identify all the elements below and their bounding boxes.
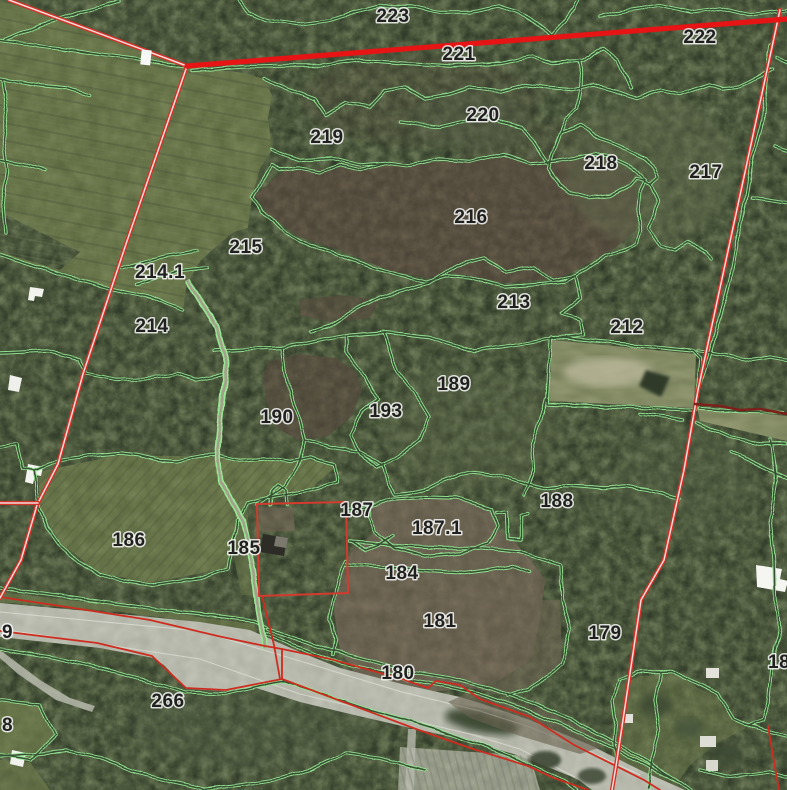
svg-text:8: 8: [2, 715, 13, 736]
svg-text:212: 212: [610, 317, 643, 338]
svg-text:266: 266: [151, 691, 184, 712]
svg-text:185: 185: [227, 538, 260, 559]
svg-text:190: 190: [260, 407, 293, 428]
svg-text:218: 218: [584, 153, 617, 174]
svg-text:222: 222: [683, 27, 716, 48]
svg-text:184: 184: [385, 563, 418, 584]
svg-text:187.1: 187.1: [412, 518, 462, 539]
svg-text:181: 181: [423, 611, 456, 632]
svg-text:179: 179: [588, 623, 621, 644]
svg-text:186: 186: [112, 530, 145, 551]
svg-text:216: 216: [454, 207, 487, 228]
svg-text:223: 223: [376, 6, 409, 27]
svg-text:187: 187: [340, 500, 373, 521]
svg-text:214: 214: [135, 316, 168, 337]
svg-text:188: 188: [540, 491, 573, 512]
svg-text:189: 189: [437, 374, 470, 395]
svg-text:215: 215: [229, 237, 262, 258]
svg-text:18: 18: [768, 652, 787, 673]
svg-text:9: 9: [2, 622, 13, 643]
svg-text:180: 180: [381, 663, 414, 684]
svg-text:220: 220: [466, 105, 499, 126]
svg-text:214.1: 214.1: [135, 262, 185, 283]
svg-text:219: 219: [310, 127, 343, 148]
svg-text:221: 221: [442, 44, 475, 65]
svg-text:213: 213: [497, 292, 530, 313]
svg-text:193: 193: [369, 401, 402, 422]
svg-text:217: 217: [689, 162, 722, 183]
